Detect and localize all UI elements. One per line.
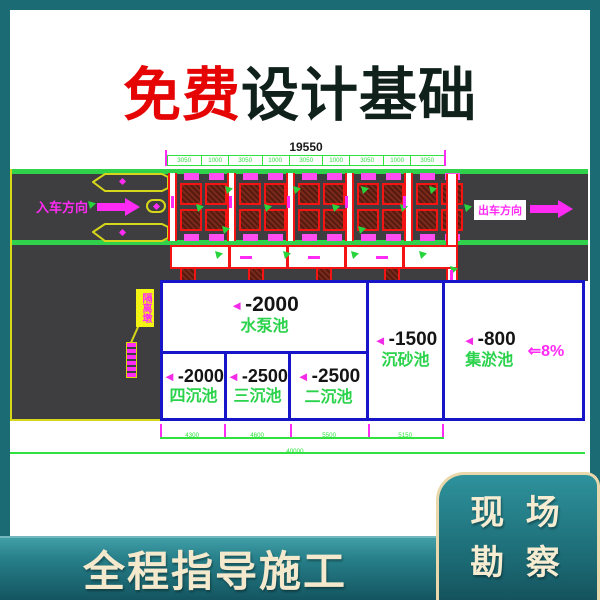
magenta-flow-arrow xyxy=(403,196,406,208)
footer-badge: 现 场 勘 察 xyxy=(436,472,600,600)
island-tag-strip xyxy=(126,342,137,378)
depth-marker: ◄ xyxy=(227,370,240,383)
pier-column xyxy=(298,173,320,241)
magenta-flow-arrow xyxy=(287,196,290,208)
magenta-flow-arrow xyxy=(376,256,388,259)
footer-slogan: 全程指导施工 xyxy=(0,538,430,599)
pool-name: 沉砂池 xyxy=(369,351,442,372)
pool-depth: -2000 xyxy=(178,366,224,387)
depth-marker: ◄ xyxy=(463,334,476,347)
pier-column xyxy=(416,173,438,241)
platform-module xyxy=(345,173,404,241)
pool-name: 四沉池 xyxy=(163,387,224,408)
dim-seg: 5150 xyxy=(398,432,412,439)
dim-seg: 3050 xyxy=(238,157,252,164)
pool-depth: -1500 xyxy=(389,329,438,351)
in-direction-label: 入车方向 xyxy=(36,197,88,216)
dim-seg: 3050 xyxy=(299,157,313,164)
out-direction-box: 出车方向 xyxy=(474,200,526,220)
in-arrow xyxy=(97,203,125,211)
dim-seg: 1000 xyxy=(390,157,404,164)
dim-seg: 4600 xyxy=(250,432,264,439)
dim-seg: 1000 xyxy=(208,157,222,164)
dim-total-bottom: 40000 xyxy=(286,448,303,455)
dim-seg: 3050 xyxy=(178,157,192,164)
pool-depth: -2000 xyxy=(245,293,299,317)
out-direction-label: 出车方向 xyxy=(478,202,522,218)
pool-name: 水泵池 xyxy=(163,317,366,338)
traffic-island xyxy=(92,173,170,192)
pool-name: 二沉池 xyxy=(291,388,366,409)
pool-fourth: ◄ -2000 四沉池 xyxy=(160,351,227,421)
traffic-island xyxy=(92,223,170,242)
headline-highlight: 免费 xyxy=(123,63,241,128)
pier-column xyxy=(239,173,261,241)
pool-grit: ◄ -1500 沉砂池 xyxy=(366,280,445,421)
depth-marker: ◄ xyxy=(374,334,387,347)
depth-marker: ◄ xyxy=(230,299,243,312)
magenta-flow-arrow xyxy=(345,196,348,208)
out-arrow-head xyxy=(558,200,573,218)
badge-line: 勘 察 xyxy=(470,538,565,588)
dim-tick xyxy=(444,150,446,166)
in-arrow-head xyxy=(125,198,140,216)
out-arrow xyxy=(530,205,558,213)
headline: 免费设计基础 xyxy=(10,48,590,132)
dim-seg: 4300 xyxy=(185,432,199,439)
depth-marker: ◄ xyxy=(163,370,176,383)
pool-name: 集淤池 xyxy=(463,351,516,372)
pool-depth: -2500 xyxy=(242,366,288,387)
pool-second: ◄ -2500 二沉池 xyxy=(288,351,369,421)
magenta-flow-arrow xyxy=(171,196,174,208)
dim-total-top: 19550 xyxy=(167,140,445,154)
dim-tick xyxy=(165,150,167,166)
promo-image: 免费设计基础 19550 3050 1000 3050 1000 3050 10… xyxy=(0,0,600,600)
island-tag: 隔离墩 xyxy=(136,289,154,327)
platform-module xyxy=(227,173,286,241)
pool-pump: ◄ -2000 水泵池 xyxy=(160,280,369,354)
site-boundary xyxy=(10,169,12,421)
pool-depth: -800 xyxy=(478,329,516,351)
pier-column xyxy=(382,173,404,241)
site-boundary xyxy=(10,419,160,421)
dim-seg: 3050 xyxy=(360,157,374,164)
badge-line: 现 场 xyxy=(470,488,565,538)
headline-rest: 设计基础 xyxy=(241,63,477,128)
pool-depth: -2500 xyxy=(312,366,361,388)
wash-platform xyxy=(168,173,463,241)
dim-strip-top: 3050 1000 3050 1000 3050 1000 3050 1000 … xyxy=(167,155,445,166)
slope-label: ⇐8% xyxy=(528,341,565,361)
dim-seg: 5500 xyxy=(322,432,336,439)
dim-seg: 3050 xyxy=(421,157,435,164)
dim-seg: 1000 xyxy=(329,157,343,164)
pool-name: 三沉池 xyxy=(227,387,288,408)
pool-silt: ◄ -800 集淤池 ⇐8% xyxy=(442,280,585,421)
magenta-flow-arrow xyxy=(308,256,320,259)
dim-seg: 1000 xyxy=(269,157,283,164)
magenta-flow-arrow xyxy=(240,256,252,259)
pool-third: ◄ -2500 三沉池 xyxy=(224,351,291,421)
magenta-flow-arrow xyxy=(229,196,232,208)
depth-marker: ◄ xyxy=(297,370,310,383)
